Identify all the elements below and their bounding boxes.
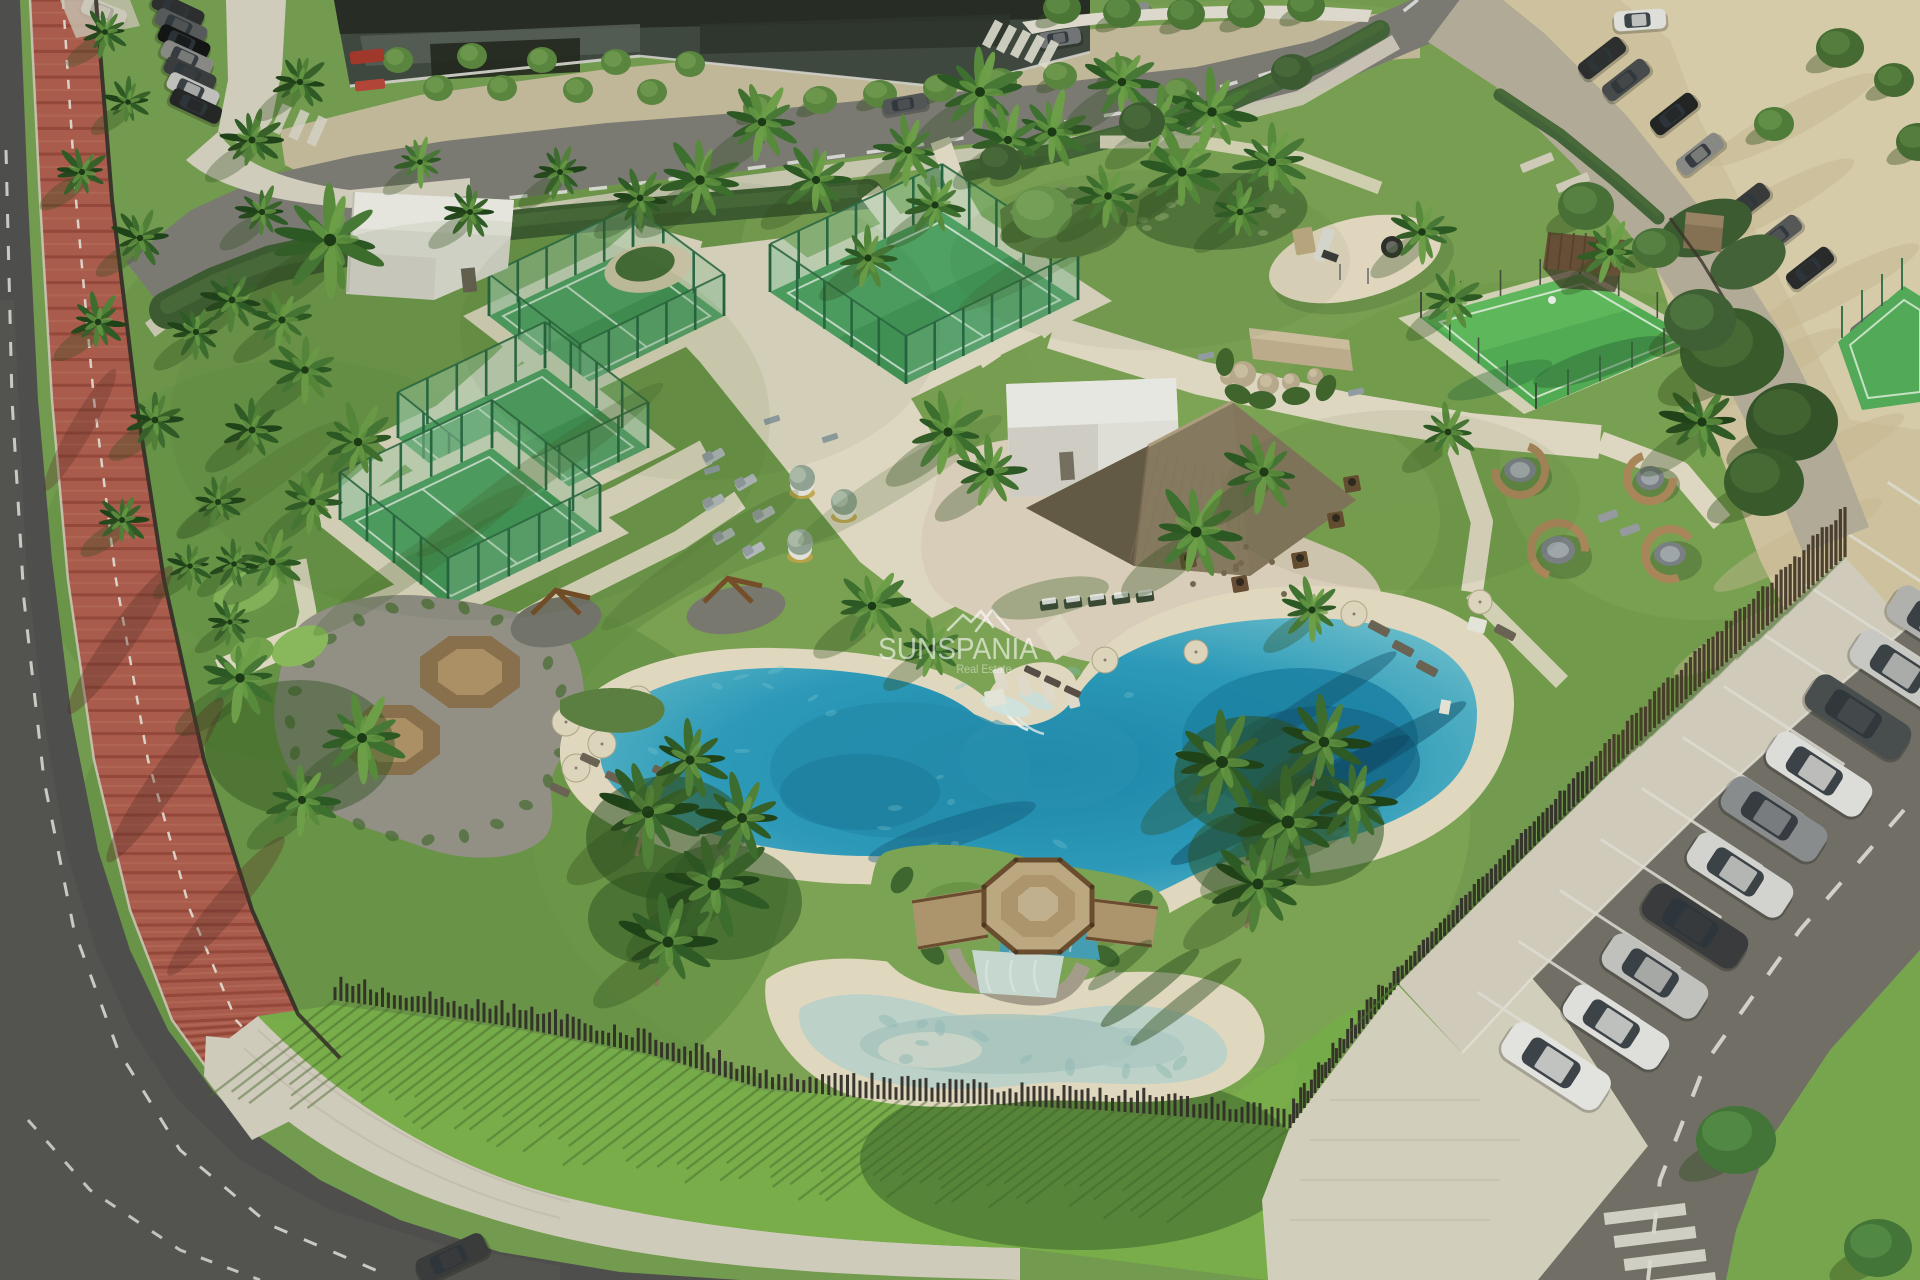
- svg-text:Real Estate: Real Estate: [957, 662, 1012, 676]
- svg-text:SUNSPANIA: SUNSPANIA: [878, 631, 1038, 666]
